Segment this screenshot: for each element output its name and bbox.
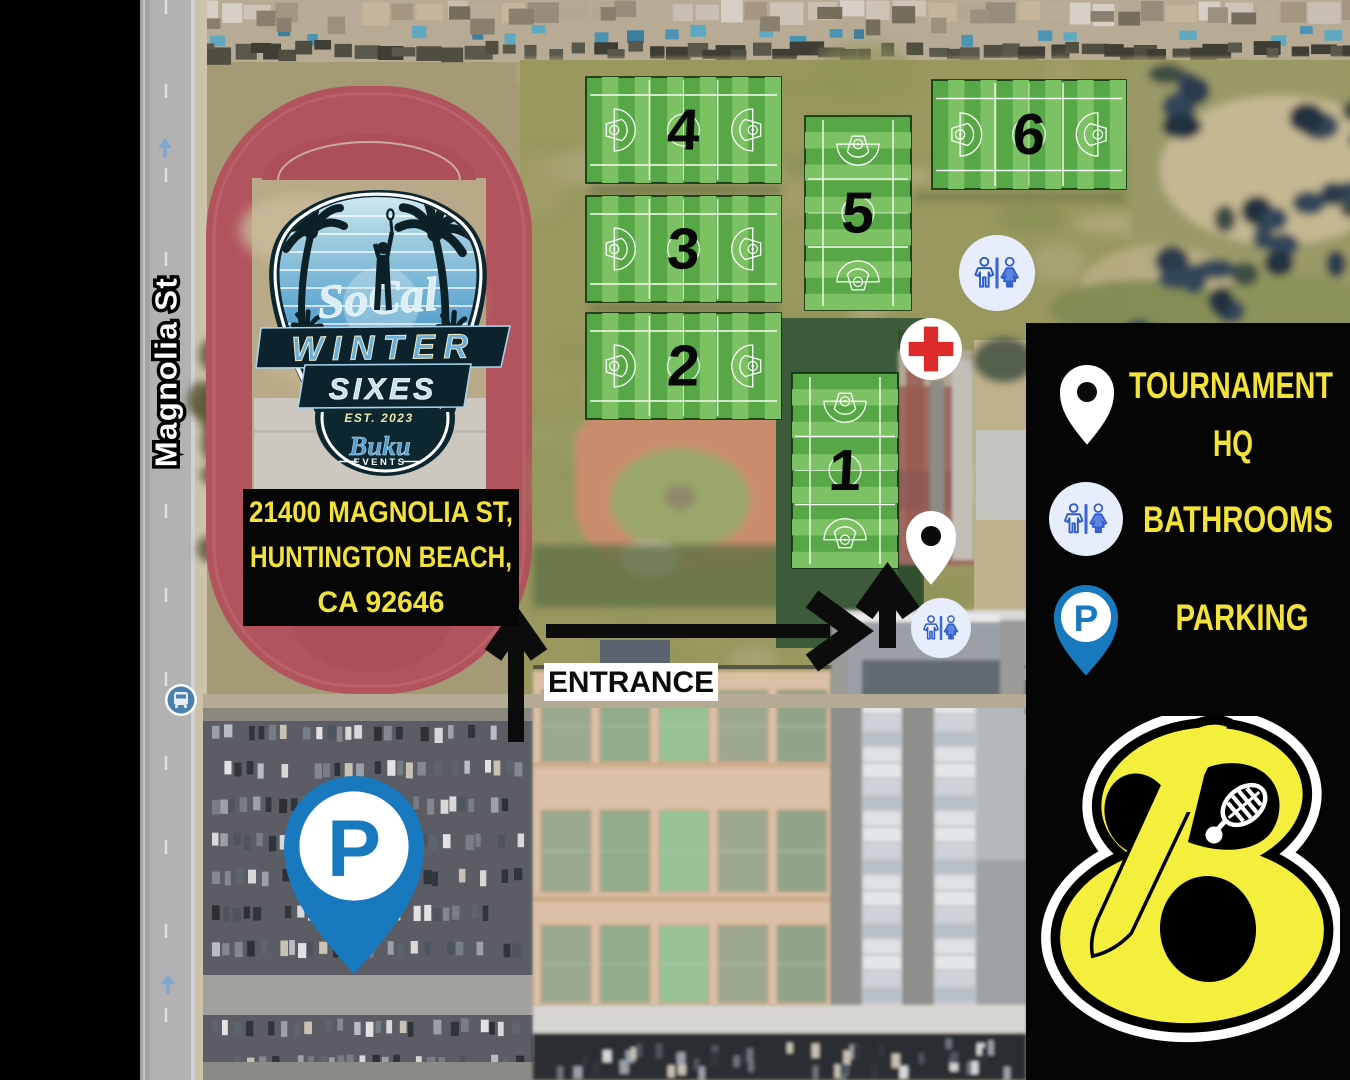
svg-text:6: 6 [1011, 102, 1047, 167]
svg-text:HQ: HQ [1213, 423, 1253, 464]
svg-text:Magnolia St: Magnolia St [149, 277, 184, 467]
svg-text:EVENTS: EVENTS [353, 457, 406, 468]
svg-text:P: P [327, 804, 381, 894]
svg-text:CA 92646: CA 92646 [318, 586, 445, 619]
svg-text:1: 1 [827, 438, 863, 503]
svg-text:2: 2 [666, 334, 702, 399]
svg-text:P: P [1074, 598, 1099, 639]
svg-text:5: 5 [840, 181, 876, 246]
svg-text:3: 3 [666, 217, 702, 282]
svg-text:TOURNAMENT: TOURNAMENT [1129, 365, 1333, 406]
svg-text:SIXES: SIXES [329, 373, 437, 406]
svg-text:BATHROOMS: BATHROOMS [1143, 499, 1333, 540]
svg-text:4: 4 [666, 98, 702, 163]
svg-text:WINTER: WINTER [291, 327, 477, 368]
svg-text:HUNTINGTON BEACH,: HUNTINGTON BEACH, [250, 541, 512, 574]
svg-text:PARKING: PARKING [1176, 597, 1309, 638]
svg-text:ENTRANCE: ENTRANCE [548, 666, 714, 699]
svg-text:EST. 2023: EST. 2023 [344, 411, 413, 425]
svg-text:21400 MAGNOLIA ST,: 21400 MAGNOLIA ST, [249, 496, 513, 529]
